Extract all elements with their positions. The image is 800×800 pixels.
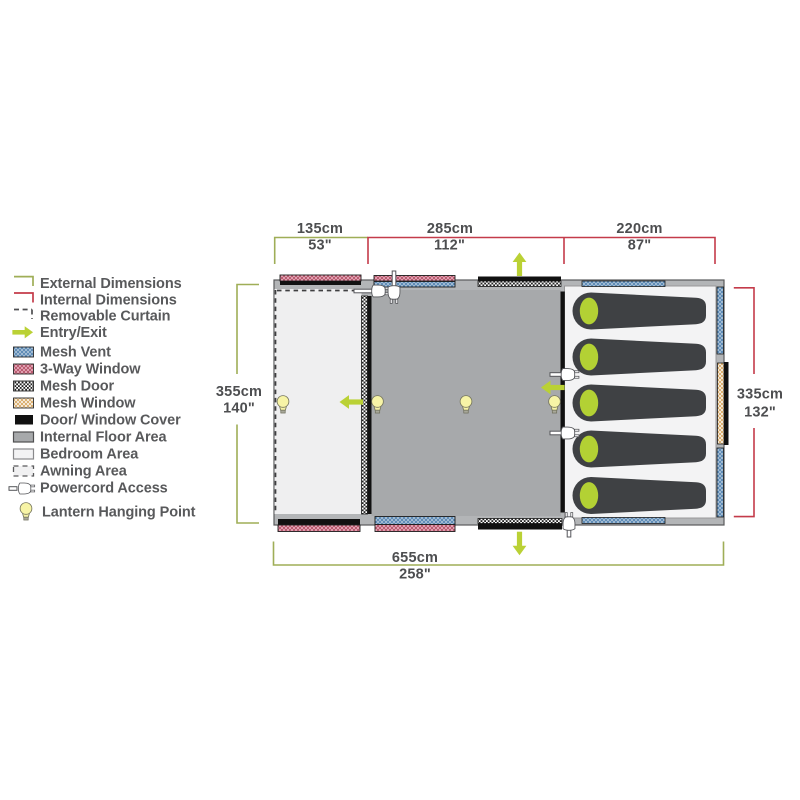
svg-text:53": 53" xyxy=(308,238,332,254)
svg-text:External Dimensions: External Dimensions xyxy=(40,276,182,292)
svg-text:355cm: 355cm xyxy=(216,384,262,400)
svg-text:220cm: 220cm xyxy=(616,221,662,237)
svg-text:335cm: 335cm xyxy=(737,387,783,403)
svg-text:Mesh Door: Mesh Door xyxy=(40,379,114,395)
svg-text:Awning Area: Awning Area xyxy=(40,464,128,480)
svg-text:87": 87" xyxy=(628,238,652,254)
svg-text:Mesh Vent: Mesh Vent xyxy=(40,345,111,361)
svg-text:Internal Dimensions: Internal Dimensions xyxy=(40,293,177,309)
svg-text:140": 140" xyxy=(223,401,255,417)
svg-text:135cm: 135cm xyxy=(297,221,343,237)
svg-text:132": 132" xyxy=(744,405,776,421)
svg-text:112": 112" xyxy=(434,238,465,254)
svg-text:Bedroom Area: Bedroom Area xyxy=(40,447,139,463)
svg-text:655cm: 655cm xyxy=(392,550,438,566)
svg-text:Mesh Window: Mesh Window xyxy=(40,396,136,412)
svg-text:258": 258" xyxy=(399,567,431,583)
svg-text:Entry/Exit: Entry/Exit xyxy=(40,325,107,341)
svg-text:Door/ Window Cover: Door/ Window Cover xyxy=(40,413,181,429)
svg-text:Removable Curtain: Removable Curtain xyxy=(40,309,170,325)
svg-text:3-Way Window: 3-Way Window xyxy=(40,362,141,378)
svg-text:Internal Floor Area: Internal Floor Area xyxy=(40,430,168,446)
svg-text:Lantern Hanging Point: Lantern Hanging Point xyxy=(42,505,196,521)
svg-text:Powercord Access: Powercord Access xyxy=(40,481,168,497)
svg-text:285cm: 285cm xyxy=(427,221,473,237)
